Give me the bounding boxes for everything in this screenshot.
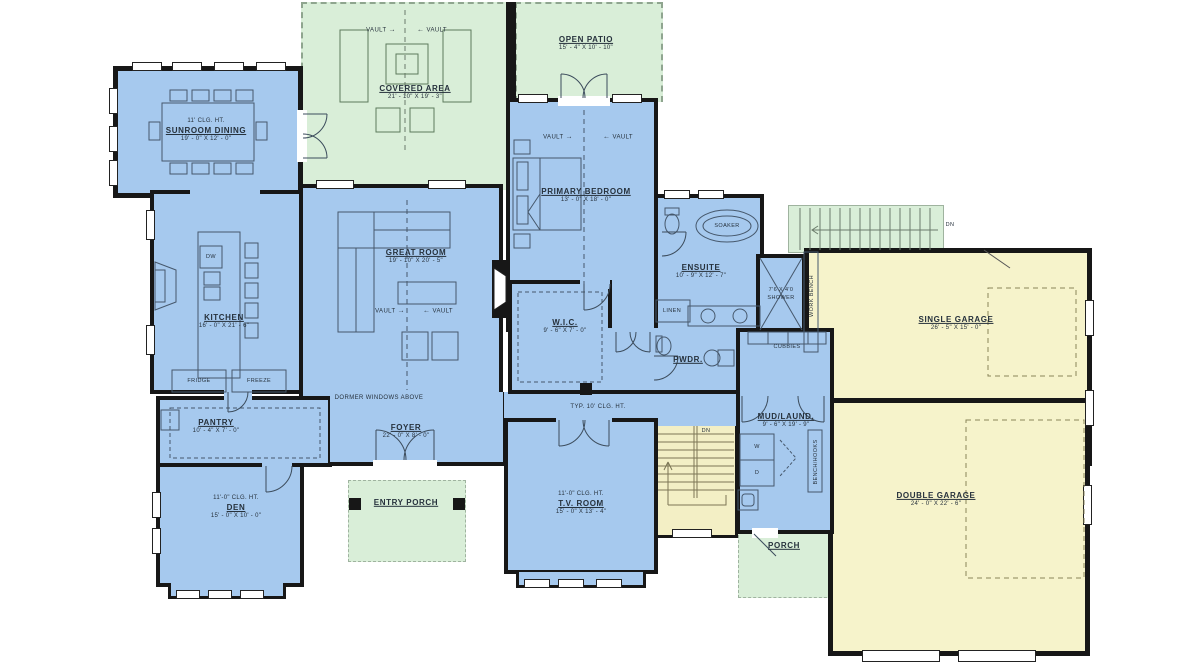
vault-label: VAULT → [543,134,573,141]
label-pwdr: PWDR. [673,355,703,365]
label-wic: W.I.C. 9' - 6" X 7' - 0" [544,318,587,336]
window [109,160,118,186]
room-mud [736,328,834,534]
window [109,126,118,152]
shower-label: SHOWER [767,295,794,301]
label-ensuite: ENSUITE 10' - 9" X 12' - 7" [676,263,726,281]
bench-hooks-label: BENCH/HOOKS [813,439,819,484]
label-den: 11'-0" CLG. HT. DEN 15' - 0" X 10' - 0" [211,495,261,521]
window [664,190,690,199]
dn-label-interior: DN [702,428,711,434]
window [214,62,244,71]
window [428,180,466,189]
label-great-room: GREAT ROOM 19' - 10" X 20' - 5" [386,248,447,266]
fridge-label: FRIDGE [187,378,210,384]
opening-kitchen-pantry [224,390,252,400]
porch-column-right [453,498,465,510]
washer-label: W [754,444,760,450]
window [596,579,622,588]
window [176,590,200,599]
room-shower [756,254,806,334]
label-porch: PORCH [768,541,800,551]
door-foyer-entry [373,460,437,470]
window [146,210,155,240]
window [152,528,161,554]
window [698,190,724,199]
work-bench-label: WORK BENCH [809,275,815,317]
cubbies-label: CUBBIES [774,344,801,350]
dn-label-exterior: DN [946,222,955,228]
window [558,579,584,588]
door-primary-patio [558,96,610,106]
label-entry-porch: ENTRY PORCH [374,498,438,508]
door-mud-porch [752,528,778,538]
window [208,590,232,599]
window [172,62,202,71]
door-sunroom-covered [297,110,307,162]
label-mud-laund: MUD/LAUND. 9' - 6" X 19' - 9" [758,412,815,430]
freeze-label: FREEZE [247,378,271,384]
vault-label: VAULT → [375,308,405,315]
label-single-garage: SINGLE GARAGE 26' - 5" X 15' - 0" [919,315,994,333]
window [316,180,354,189]
label-foyer: FOYER 22' - 0" X 8' - 0" [383,423,430,441]
window [1085,390,1094,426]
dryer-label: D [755,470,759,476]
linen-label: LINEN [663,308,681,314]
label-tv-room: 11'-0" CLG. HT. T.V. ROOM 15' - 0" X 13'… [556,491,606,517]
window [1083,485,1092,525]
window [146,325,155,355]
door-wic [580,280,610,289]
window [132,62,162,71]
opening-sunroom-kitchen [190,190,260,199]
label-covered-area: COVERED AREA 21' - 10" X 19' - 3" [379,84,450,102]
room-wic [508,280,612,394]
wall-hall-post [580,383,592,395]
wall-covered-patio [506,2,516,102]
room-kitchen [150,190,302,394]
window [152,492,161,518]
dormer-note: DORMER WINDOWS ABOVE [335,395,424,401]
vault-label: ← VAULT [423,308,453,315]
garage-door [862,650,940,662]
window [1085,300,1094,336]
vault-label: VAULT → [366,27,396,34]
door-mud-hall [740,392,766,402]
dw-label: DW [206,254,216,260]
label-primary-bedroom: PRIMARY BEDROOM 13' - 0" X 18' - 0" [541,187,630,205]
door-mud-hall2 [800,392,826,402]
room-stairs [654,424,738,538]
window [612,94,642,103]
room-den [156,463,304,587]
room-pantry [156,396,332,467]
window [524,579,550,588]
label-double-garage: DOUBLE GARAGE 24' - 0" X 22' - 6" [897,491,976,509]
window [256,62,286,71]
vault-label: ← VAULT [417,27,447,34]
label-sunroom: 11' CLG. HT. SUNROOM DINING 19' - 0" X 1… [166,118,246,144]
room-double-garage [828,398,1090,656]
label-pantry: PANTRY 10' - 4" X 7' - 0" [193,418,240,436]
garage-door [958,650,1036,662]
soaker-label: SOAKER [714,223,739,229]
door-den [262,463,292,472]
label-kitchen: KITCHEN 16' - 0" X 21' - 6" [199,313,249,331]
room-great [299,184,503,396]
floor-plan: 11' CLG. HT. SUNROOM DINING 19' - 0" X 1… [0,0,1200,668]
area-exterior-stair [788,205,944,253]
porch-column-left [349,498,361,510]
window [240,590,264,599]
area-entry-porch [348,480,466,562]
window [672,529,712,538]
window [109,88,118,114]
window [518,94,548,103]
label-open-patio: OPEN PATIO 15' - 4" X 10' - 10" [559,35,613,53]
ceiling-note: TYP. 10' CLG. HT. [570,404,625,410]
door-tv [556,416,612,426]
door-bedroom-hall [612,328,654,337]
vault-label: ← VAULT [603,134,633,141]
shower-size-label: 7'6 X 4'0 [769,287,794,293]
